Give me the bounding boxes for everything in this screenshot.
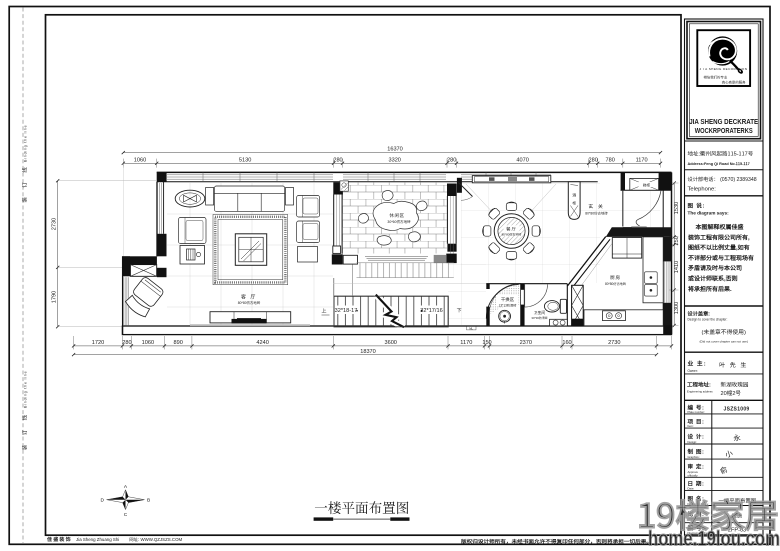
svg-text:装订线: 装订线 — [21, 406, 29, 451]
svg-text:Address:Feng Qi Road No.115-11: Address:Feng Qi Road No.115-117 — [688, 162, 750, 167]
svg-text:18370: 18370 — [360, 349, 376, 355]
svg-text:80*80仿古地砖: 80*80仿古地砖 — [605, 281, 627, 286]
svg-text:设计部电话： (0570) 2389348: 设计部电话： (0570) 2389348 — [688, 176, 757, 183]
svg-text:80*80仿古地砖: 80*80仿古地砖 — [585, 210, 608, 215]
svg-text:永: 永 — [733, 433, 742, 444]
svg-text:D: D — [101, 498, 105, 504]
svg-text:真心真意的服务: 真心真意的服务 — [722, 80, 746, 85]
svg-text:柜: 柜 — [572, 201, 576, 207]
svg-text:图 说:: 图 说: — [688, 202, 706, 210]
svg-text:2730: 2730 — [51, 218, 57, 230]
svg-text:新湖玫瑰园: 新湖玫瑰园 — [721, 381, 749, 389]
svg-text:80*80仿古地砖: 80*80仿古地砖 — [238, 300, 261, 305]
svg-text:相信我们的专业: 相信我们的专业 — [704, 74, 728, 79]
svg-text:20幢2号: 20幢2号 — [721, 389, 742, 397]
svg-text:矛盾请及时与本公司: 矛盾请及时与本公司 — [687, 263, 742, 272]
svg-text:3320: 3320 — [388, 157, 400, 163]
svg-text:1170: 1170 — [460, 340, 472, 346]
svg-text:280: 280 — [333, 157, 342, 163]
svg-text:一楼平面布置图: 一楼平面布置图 — [314, 498, 409, 518]
svg-text:上: 上 — [322, 308, 327, 315]
svg-text:装饰工程有限公司所有,: 装饰工程有限公司所有, — [687, 232, 750, 241]
svg-text:16370: 16370 — [387, 147, 403, 153]
svg-text:Design:: Design: — [688, 440, 698, 444]
svg-text:30*60仿古地砖: 30*60仿古地砖 — [387, 220, 411, 225]
svg-text:版权归设计师所有，未经书面允许不得复印任何部分，否则将承担一: 版权归设计师所有，未经书面允许不得复印任何部分，否则将承担一切后果。 — [461, 538, 652, 545]
svg-text:不详部分或与工程现场有: 不详部分或与工程现场有 — [688, 253, 754, 262]
svg-text:JIA SHENG DECKRATE: JIA SHENG DECKRATE — [689, 119, 758, 126]
svg-text:J I A SHENG DECORATION: J I A SHENG DECORATION — [700, 66, 748, 71]
svg-text:4070: 4070 — [516, 157, 528, 163]
svg-text:250: 250 — [674, 236, 680, 245]
svg-text:Owner:: Owner: — [688, 369, 698, 373]
svg-text:或设计师联系,否则: 或设计师联系,否则 — [688, 274, 738, 283]
svg-text:(未盖章不得使用): (未盖章不得使用) — [701, 327, 746, 336]
svg-text:ML: ML — [469, 326, 473, 330]
svg-text:Binding the line: Binding the line — [24, 371, 28, 408]
svg-text:32*18-17: 32*18-17 — [335, 308, 358, 314]
svg-text:13*13防滑砖: 13*13防滑砖 — [499, 302, 518, 307]
svg-text:5130: 5130 — [239, 157, 251, 163]
svg-text:业 主:: 业 主: — [688, 359, 707, 368]
svg-text:(Did not cover chapter can not: (Did not cover chapter can not use) — [700, 340, 748, 344]
svg-text:WOCKRPORATERKS: WOCKRPORATERKS — [695, 128, 753, 135]
svg-text:80*80仿古地砖: 80*80仿古地砖 — [502, 233, 522, 237]
svg-text:1790: 1790 — [51, 291, 57, 303]
svg-text:叶 先 生: 叶 先 生 — [719, 360, 748, 369]
svg-text:1300: 1300 — [674, 302, 680, 314]
svg-text:将承担所有后果.: 将承担所有后果. — [688, 284, 732, 293]
svg-text:150: 150 — [482, 340, 491, 346]
svg-text:280: 280 — [447, 157, 456, 163]
svg-text:1530: 1530 — [674, 202, 680, 214]
svg-text:1170: 1170 — [636, 157, 648, 163]
svg-text:酒: 酒 — [572, 193, 576, 199]
svg-text:1410: 1410 — [674, 261, 680, 273]
svg-text:Binding the line: Binding the line — [24, 125, 28, 162]
svg-text:Engineering address: Engineering address — [687, 390, 713, 394]
svg-text:佳盛装饰 Jia Sheng Zhuang Shi网址: W: 佳盛装饰 Jia Sheng Zhuang Shi网址: WWW.QZJSZS.… — [47, 536, 183, 543]
svg-text:2370: 2370 — [520, 340, 532, 346]
svg-text:Telephone:: Telephone: — [688, 187, 717, 193]
svg-text:1060: 1060 — [134, 157, 146, 163]
svg-text:780: 780 — [606, 157, 615, 163]
svg-text:鞋柜: 鞋柜 — [643, 182, 651, 188]
svg-text:The diagram says:: The diagram says: — [688, 210, 730, 215]
svg-text:C: C — [124, 512, 128, 518]
svg-text:图纸不以比例丈量,如有: 图纸不以比例丈量,如有 — [688, 243, 750, 252]
svg-text:玄 关: 玄 关 — [588, 203, 604, 210]
svg-text:B: B — [147, 498, 150, 504]
svg-text:工程地址:: 工程地址: — [687, 380, 711, 388]
svg-text:280: 280 — [589, 157, 598, 163]
svg-text:设计盖章:: 设计盖章: — [688, 310, 711, 317]
svg-text:1720: 1720 — [92, 340, 104, 346]
svg-text:3600: 3600 — [384, 340, 396, 346]
svg-text:本图解释权属佳盛: 本图解释权属佳盛 — [696, 222, 744, 231]
svg-text:2730: 2730 — [608, 340, 620, 346]
svg-text:160: 160 — [562, 340, 571, 346]
svg-text:餐厅: 餐厅 — [506, 226, 517, 232]
svg-text:Plate number:: Plate number: — [688, 410, 706, 414]
svg-text:280: 280 — [122, 340, 131, 346]
svg-text:officially:: officially: — [688, 473, 699, 477]
svg-text:890: 890 — [174, 340, 183, 346]
svg-text:home.19lou.com: home.19lou.com — [648, 528, 780, 551]
svg-text:Graphics:: Graphics: — [688, 455, 700, 459]
svg-text:地址:衢州风起路115-117号: 地址:衢州风起路115-117号 — [688, 149, 754, 157]
svg-text:1060: 1060 — [142, 340, 154, 346]
svg-text:32*17/16: 32*17/16 — [420, 308, 442, 314]
svg-text:Item:: Item: — [688, 424, 694, 428]
svg-text:4240: 4240 — [256, 340, 268, 346]
svg-text:Design to cover the chapter:: Design to cover the chapter: — [688, 317, 728, 321]
svg-text:装订线: 装订线 — [21, 158, 29, 203]
svg-text:休闲区: 休闲区 — [389, 213, 404, 219]
svg-text:下: 下 — [457, 307, 462, 314]
svg-text:30*30防滑砖: 30*30防滑砖 — [531, 316, 547, 320]
svg-text:JSZS1009: JSZS1009 — [723, 406, 749, 412]
